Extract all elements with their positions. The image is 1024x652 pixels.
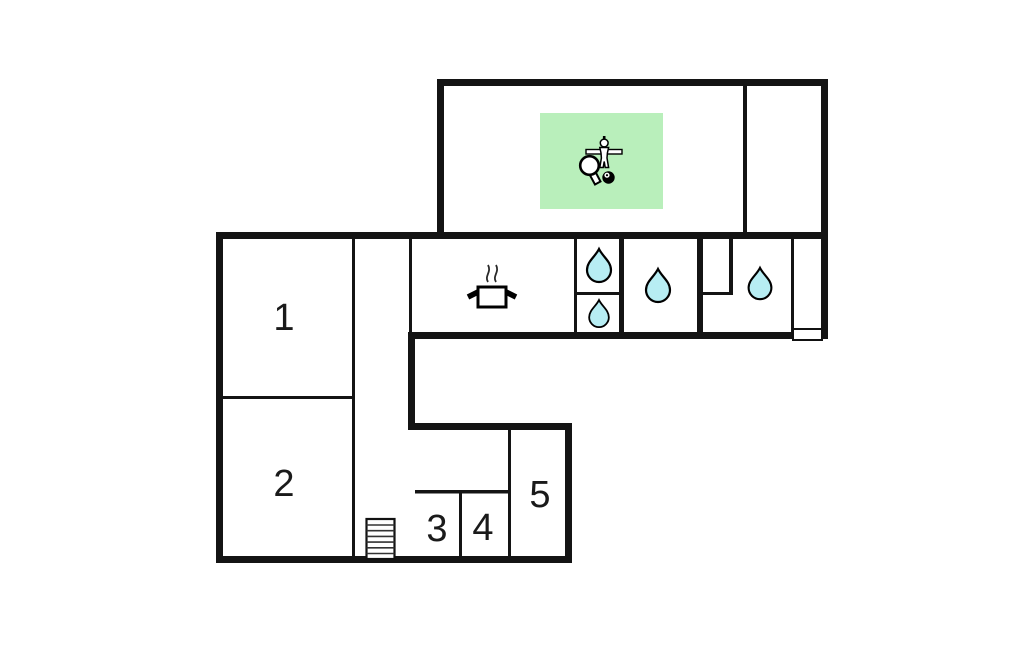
wall bbox=[791, 239, 794, 332]
room-4-label: 4 bbox=[472, 507, 493, 549]
wall bbox=[437, 79, 828, 86]
wall bbox=[216, 232, 828, 239]
room-5-label: 5 bbox=[529, 474, 550, 516]
wall bbox=[577, 292, 619, 295]
room-3-label: 3 bbox=[426, 508, 447, 550]
wall bbox=[743, 86, 747, 232]
wall bbox=[223, 396, 355, 399]
wall bbox=[409, 239, 412, 332]
plan-background bbox=[0, 0, 1024, 652]
billiard-ball-icon bbox=[602, 171, 614, 183]
wall bbox=[697, 239, 703, 332]
wall bbox=[415, 490, 511, 494]
wall bbox=[437, 79, 444, 239]
wall bbox=[408, 423, 572, 430]
wall bbox=[619, 239, 624, 332]
wall bbox=[459, 493, 462, 556]
wall bbox=[574, 239, 577, 332]
foosball-player-icon bbox=[600, 136, 609, 168]
wall bbox=[408, 332, 828, 339]
room-1-label: 1 bbox=[273, 297, 294, 339]
door-icon bbox=[793, 329, 822, 340]
stairs-icon bbox=[367, 519, 395, 559]
wall bbox=[821, 79, 828, 339]
wall bbox=[565, 423, 572, 563]
wall bbox=[408, 332, 415, 430]
room-2-label: 2 bbox=[273, 463, 294, 505]
wall bbox=[216, 232, 223, 563]
wall bbox=[703, 292, 733, 295]
wall bbox=[729, 239, 733, 295]
floor-plan: 1 2 3 4 5 bbox=[0, 0, 1024, 652]
